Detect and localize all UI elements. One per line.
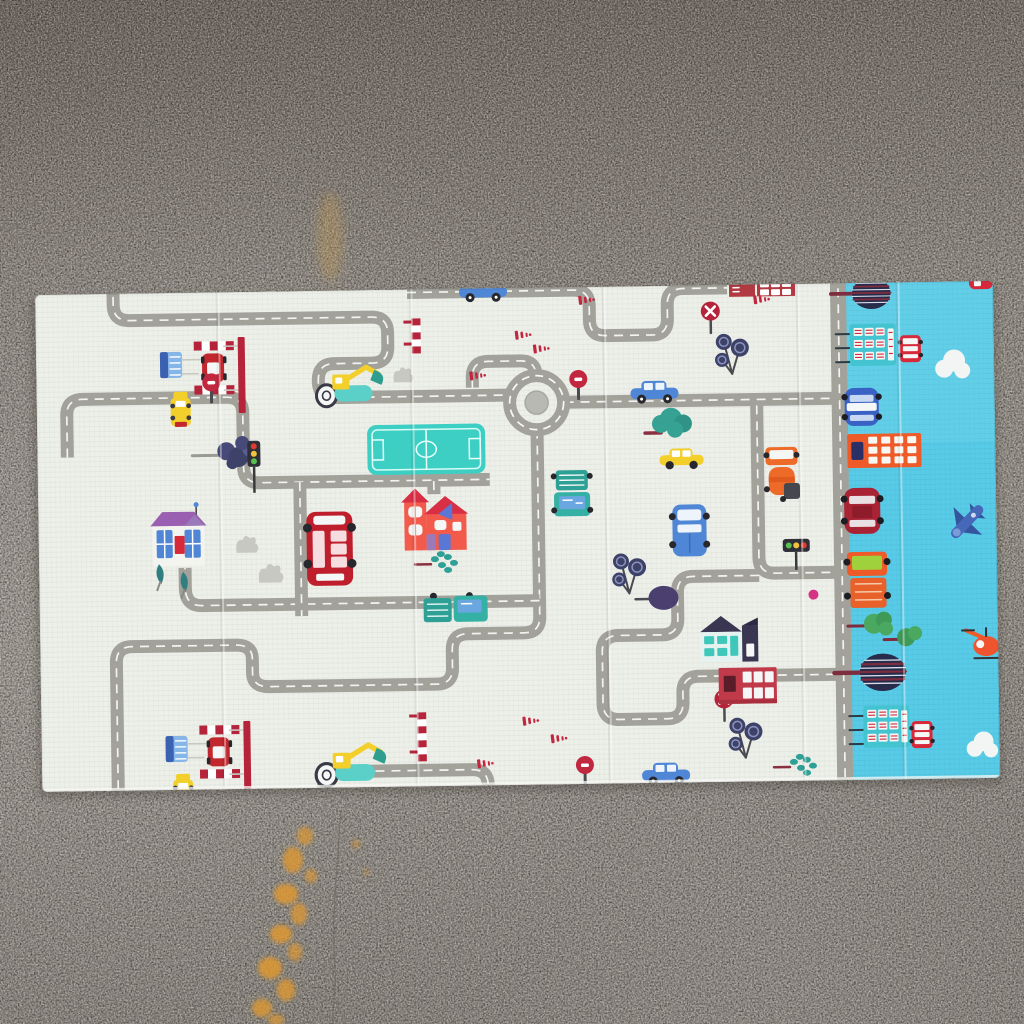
- paint-stain: [288, 943, 302, 961]
- play-mat: [35, 268, 1002, 811]
- paint-stain: [297, 827, 313, 845]
- paint-stain: [317, 192, 343, 282]
- item-bminibus: [897, 335, 923, 362]
- play-mat-photo: [0, 0, 1024, 1024]
- paint-stain: [363, 869, 369, 875]
- paint-stain: [258, 957, 282, 979]
- paint-stain: [283, 847, 303, 873]
- item-bcred: [840, 488, 884, 535]
- item-bminibus: [909, 721, 935, 748]
- paint-stain: [291, 903, 307, 925]
- paint-stain: [352, 840, 360, 848]
- item-bred2: [719, 667, 778, 704]
- paint-stain: [270, 925, 292, 943]
- item-bpolice: [841, 388, 882, 427]
- item-dbus: [303, 511, 357, 586]
- paint-stain: [305, 869, 317, 883]
- item-field: [367, 423, 486, 475]
- paint-stain: [252, 999, 272, 1017]
- item-borange: [847, 433, 921, 468]
- photo-stage: [0, 0, 1024, 1024]
- paint-stain: [277, 979, 295, 1001]
- item-van: [669, 504, 711, 557]
- paint-stain: [274, 884, 298, 904]
- item-pickuph: [423, 592, 487, 622]
- item-pickupv: [551, 470, 594, 517]
